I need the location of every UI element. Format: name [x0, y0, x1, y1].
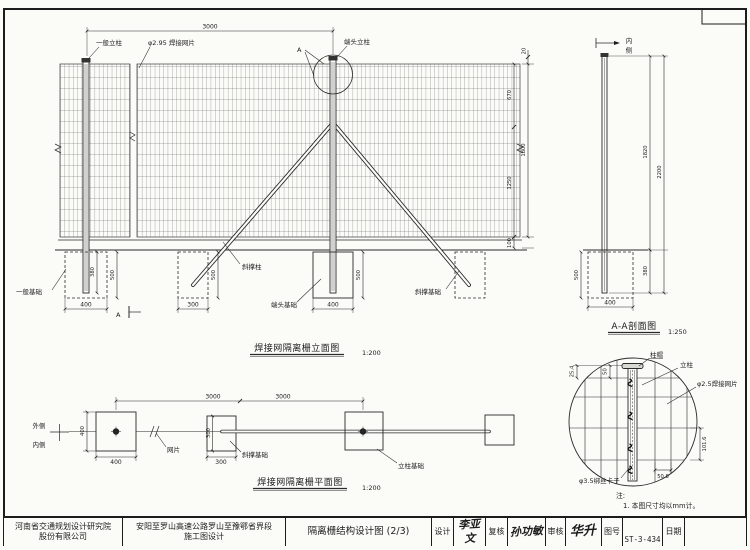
dim-upper-text: 670 — [507, 90, 513, 100]
plan-scale: 1:200 — [362, 484, 381, 492]
aa-foundation-box — [588, 252, 633, 298]
detail-view — [569, 358, 704, 487]
leader-end-post — [337, 46, 347, 57]
elevation-title: 焊接网隔离栅立面图 — [254, 342, 340, 354]
drawing-title: 隔离栅结构设计图 (2/3) — [308, 526, 410, 538]
plan-dim-brace-h-text: 300 — [206, 428, 212, 438]
review-signature: 华升 — [570, 523, 597, 541]
end-post-cap — [329, 56, 338, 61]
company-cell: 河南省交通规划设计研究院 股份有限公司 — [4, 518, 122, 546]
company-line1: 河南省交通规划设计研究院 — [15, 522, 111, 532]
plan-title: 焊接网隔离栅平面图 — [257, 476, 343, 488]
design-signature-cell: 李亚文 — [453, 518, 485, 546]
review-label-cell: 审核 — [545, 518, 565, 546]
plan-mesh-label: 网片 — [167, 445, 180, 454]
leader-end-foundation — [297, 279, 321, 302]
leader-brace-foundation — [446, 271, 459, 289]
leader-plan-mesh — [156, 433, 166, 447]
design-label-cell: 设计 — [431, 518, 453, 546]
frame-corner-box — [702, 9, 746, 24]
dim-end-found-depth-text: 500 — [356, 270, 362, 280]
elevation-scale: 1:200 — [362, 349, 381, 357]
drawing-no-value: ST-3-434 — [624, 535, 660, 544]
dim-total-text: 1800 — [521, 143, 527, 156]
leader-brace-post — [223, 242, 240, 264]
leader-detail-post — [642, 368, 678, 385]
end-foundation-label: 端头基础 — [271, 300, 298, 309]
general-post-label: 一般立柱 — [96, 38, 123, 47]
general-foundation-label: 一般基础 — [16, 287, 43, 296]
detail-mesh-label: φ2.5焊接网片 — [697, 379, 738, 388]
design-signature: 李亚文 — [453, 518, 485, 546]
detail-cap-label: 柱帽 — [650, 350, 664, 359]
drawing-no-label: 图号 — [604, 527, 620, 537]
break-mark-gap — [130, 132, 135, 141]
leader-plan-post-found — [377, 449, 397, 463]
mesh-panel-left — [60, 64, 130, 237]
drawing-no-label-cell: 图号 — [601, 518, 622, 546]
plan-view — [50, 397, 514, 491]
section-aa-view — [581, 38, 668, 335]
dim-ground-gap-text: 100 — [507, 238, 513, 248]
detail-dim-wiretop-text: 25.4 — [570, 365, 576, 377]
aa-scale: 1:250 — [668, 328, 687, 336]
project-cell: 安阳至罗山高速公路罗山至豫鄂省界段 施工图设计 — [122, 518, 285, 546]
detail-dim-v-text: 101.6 — [702, 437, 708, 452]
plan-inner-label: 内侧 — [33, 440, 46, 449]
leader-general-foundation — [52, 269, 66, 290]
dim-brace-found-depth-text: 500 — [211, 270, 217, 280]
check-label-cell: 复核 — [485, 518, 507, 546]
aa-inner-char1: 内 — [626, 36, 633, 45]
title-block: 河南省交通规划设计研究院 股份有限公司 安阳至罗山高速公路罗山至豫鄂省界段 施工… — [4, 516, 746, 546]
detail-clamp-label: φ3.5绑丝卡子 — [579, 476, 620, 485]
design-label: 设计 — [435, 527, 451, 537]
date-label-cell: 日期 — [662, 518, 684, 546]
aa-post-cap — [601, 53, 609, 57]
general-post — [83, 62, 89, 293]
leader-general-post — [89, 47, 99, 58]
drawing-canvas: 一般立柱 φ2.95 焊接网片 A 端头立柱 3000 20 670 1800 … — [0, 0, 750, 550]
end-post-label: 端头立柱 — [344, 37, 371, 46]
aa-dim-found-width-text: 400 — [604, 300, 616, 307]
drawing-title-cell: 隔离栅结构设计图 (2/3) — [285, 518, 431, 546]
brace-foundation-label: 斜撑基础 — [415, 287, 442, 296]
dim-cap-text: 20 — [522, 48, 528, 55]
plan-post-cross-mid — [358, 427, 368, 437]
mesh-panel-right — [137, 64, 520, 237]
leader-detail-cap — [639, 359, 649, 367]
dim-post-embed-text: 380 — [90, 267, 96, 277]
mesh-label: φ2.95 焊接网片 — [148, 38, 195, 47]
company-line2: 股份有限公司 — [39, 532, 87, 542]
check-label: 复核 — [489, 527, 505, 537]
detail-dim-cap-text: 50 — [603, 368, 609, 375]
detail-dim-h-text: 50.8 — [657, 474, 669, 480]
dim-end-found-width-text: 400 — [327, 302, 339, 309]
drawing-no-value-cell: ST-3-434 — [622, 518, 662, 546]
detail-post-label: 立柱 — [680, 360, 694, 369]
date-value-cell — [684, 518, 746, 546]
aa-dim-above-text: 1820 — [643, 145, 649, 158]
review-signature-cell: 华升 — [565, 518, 601, 546]
plan-dim-found-h-text: 400 — [80, 426, 86, 436]
detail-post-cap — [622, 364, 643, 369]
plan-dim-span1-text: 3000 — [205, 394, 220, 401]
aa-title: A-A剖面图 — [611, 320, 656, 332]
dim-brace-found-width-text: 300 — [187, 302, 199, 309]
review-label: 审核 — [548, 527, 564, 537]
plan-dim-brace-w-text: 300 — [215, 459, 227, 466]
end-post — [330, 60, 336, 293]
inner-side-arrow — [614, 41, 620, 45]
dim-span-text: 3000 — [202, 24, 217, 31]
date-label: 日期 — [666, 527, 682, 537]
dim-found-depth1-text: 500 — [110, 270, 116, 280]
project-line2: 施工图设计 — [184, 532, 224, 542]
plan-post-cross-left — [111, 427, 121, 437]
project-line1: 安阳至罗山高速公路罗山至豫鄂省界段 — [136, 522, 272, 532]
section-mark-label: A — [116, 311, 121, 319]
general-post-cap — [82, 58, 91, 63]
plan-outer-label: 外侧 — [33, 421, 46, 430]
notes-title: 注: — [616, 491, 625, 500]
check-signature-cell: 孙功敏 — [507, 518, 545, 546]
aa-inner-char2: 侧 — [626, 46, 633, 55]
notes-item1: 1. 本图尺寸均以mm计。 — [623, 501, 699, 510]
aa-dim-total-text: 2200 — [657, 165, 663, 178]
plan-brace-foundation-label: 斜撑基础 — [242, 450, 269, 459]
detail-ref-label: A — [297, 46, 302, 54]
plan-post-foundation-label: 立柱基础 — [398, 461, 425, 470]
plan-dim-span2-text: 3000 — [275, 394, 290, 401]
dim-found-width1-text: 400 — [80, 302, 92, 309]
plan-dim-found-w-text: 400 — [110, 459, 122, 466]
drawing-sheet: 一般立柱 φ2.95 焊接网片 A 端头立柱 3000 20 670 1800 … — [0, 0, 750, 550]
detail-ref-leader1 — [305, 50, 324, 64]
leader-plan-brace-found — [230, 441, 241, 452]
aa-dim-embed-text: 380 — [643, 266, 649, 276]
check-signature: 孙功敏 — [510, 524, 544, 539]
brace-post-label: 斜撑柱 — [242, 262, 262, 271]
aa-dim-found-depth-text: 500 — [574, 270, 580, 280]
dim-lower-text: 1250 — [507, 176, 513, 189]
